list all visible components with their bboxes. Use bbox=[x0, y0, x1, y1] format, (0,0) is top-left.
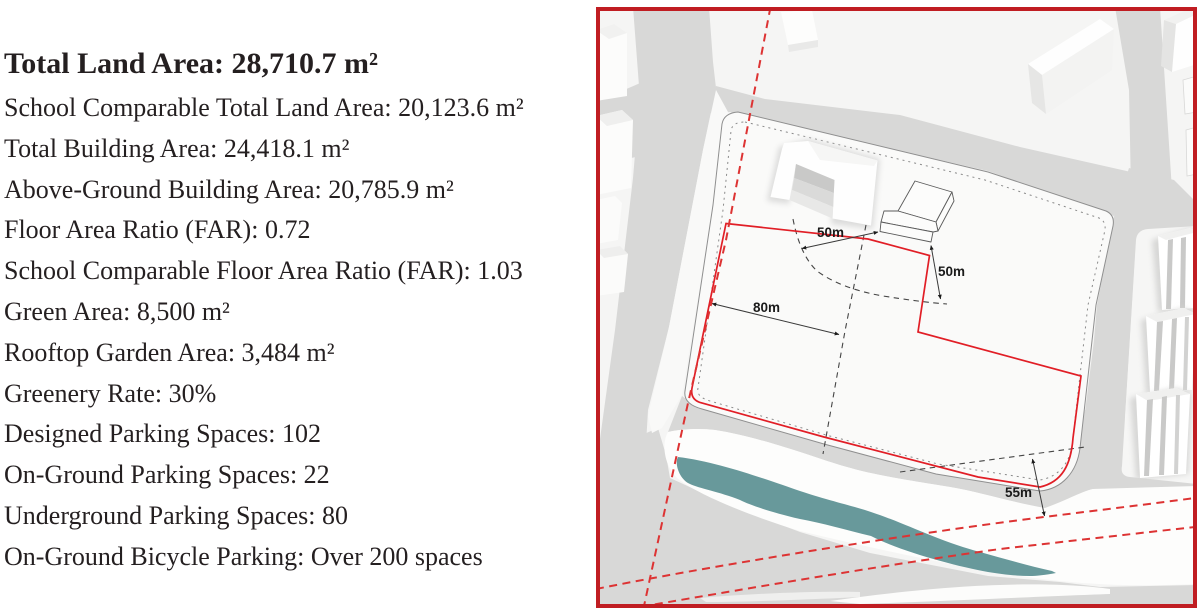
svg-text:80m: 80m bbox=[753, 300, 780, 315]
svg-text:55m: 55m bbox=[1005, 485, 1032, 500]
svg-text:50m: 50m bbox=[938, 264, 965, 279]
svg-text:50m: 50m bbox=[817, 225, 844, 240]
